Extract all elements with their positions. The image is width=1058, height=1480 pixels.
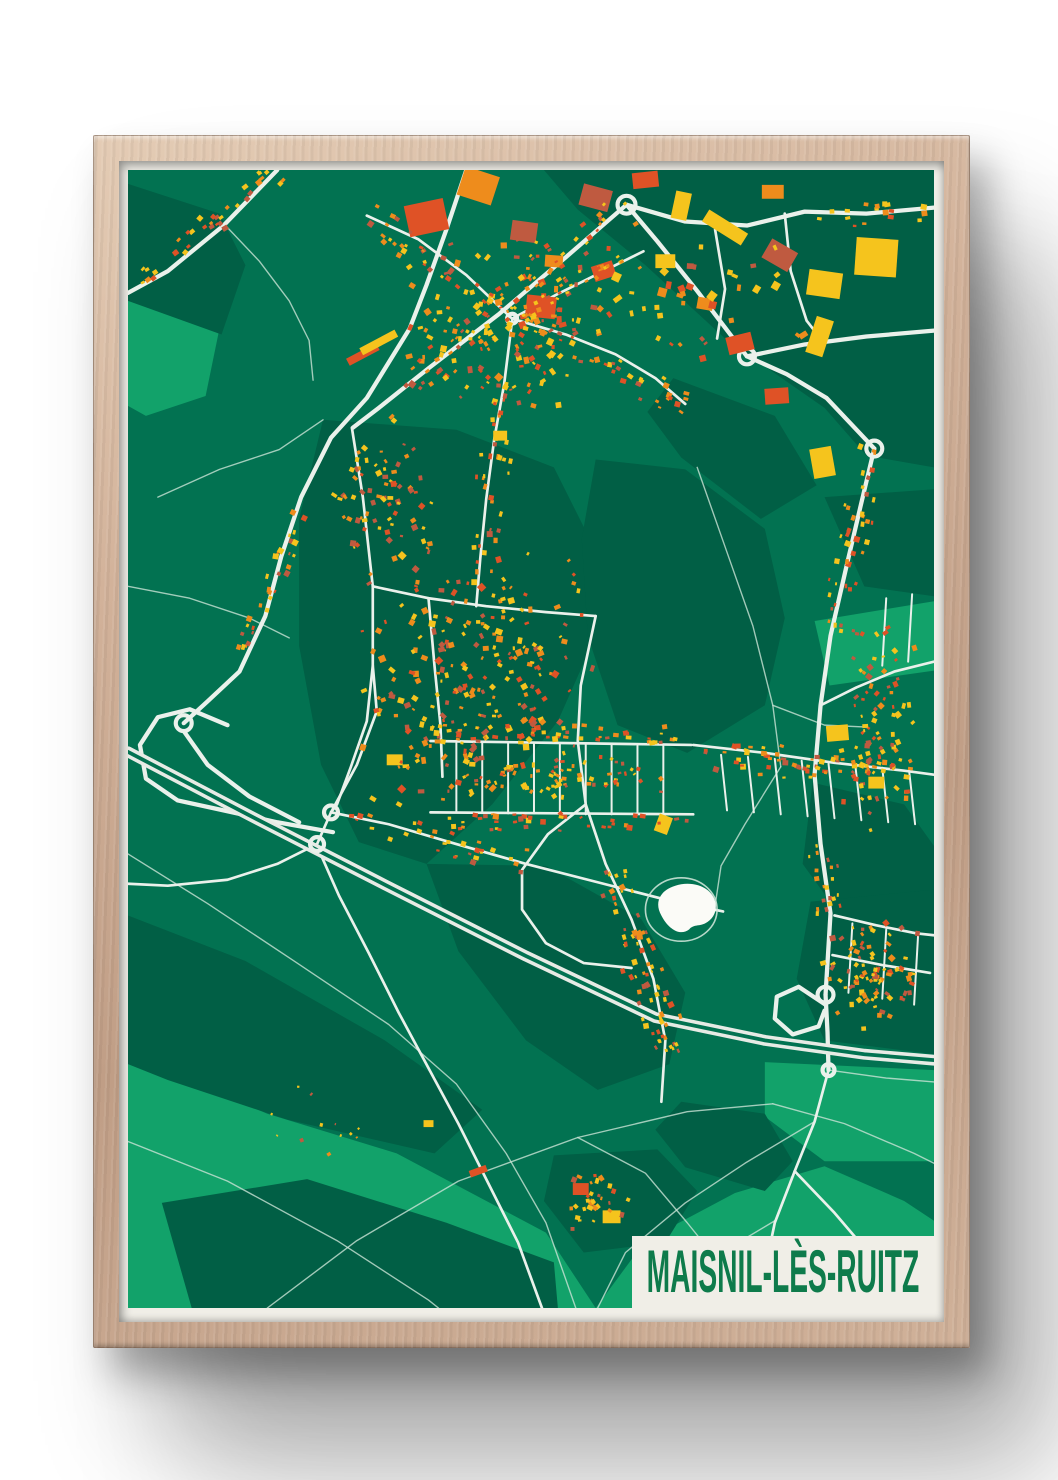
- map-title-band: MAISNIL-LÈS-RUITZ: [632, 1236, 934, 1308]
- poster-frame: MAISNIL-LÈS-RUITZ: [93, 135, 970, 1348]
- map-canvas: [128, 170, 934, 1308]
- page-background: MAISNIL-LÈS-RUITZ: [0, 0, 1058, 1480]
- map-poster: MAISNIL-LÈS-RUITZ: [128, 170, 934, 1308]
- map-title: MAISNIL-LÈS-RUITZ: [646, 1242, 919, 1302]
- poster-matte: MAISNIL-LÈS-RUITZ: [119, 161, 944, 1322]
